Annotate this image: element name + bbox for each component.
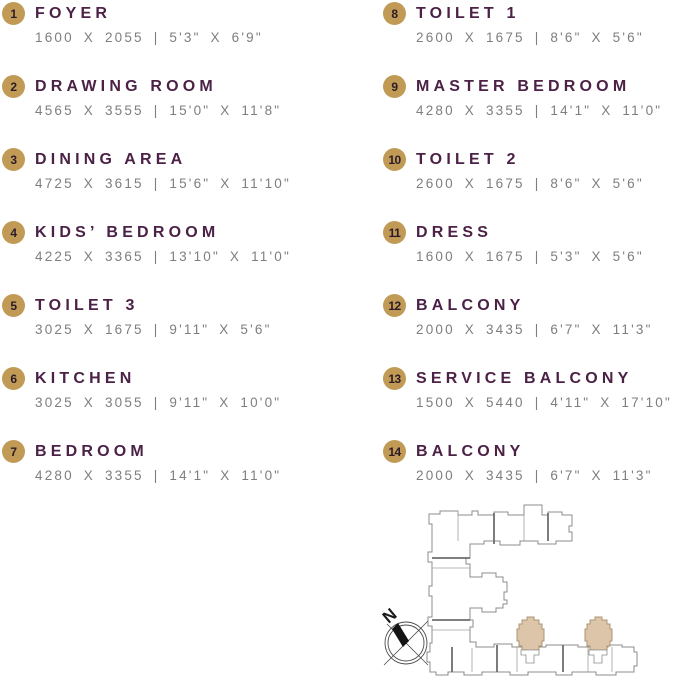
legend-item-header: 7BEDROOM: [2, 440, 291, 463]
room-number-badge: 2: [2, 75, 25, 98]
room-number-badge: 1: [2, 2, 25, 25]
legend-item: 13SERVICE BALCONY1500 X 5440 | 4'11" X 1…: [383, 367, 672, 412]
room-name-label: KITCHEN: [35, 370, 136, 388]
room-number-badge: 12: [383, 294, 406, 317]
legend-item: 14BALCONY2000 X 3435 | 6'7" X 11'3": [383, 440, 672, 485]
room-name-label: TOILET 3: [35, 297, 139, 315]
room-name-label: BALCONY: [416, 297, 525, 315]
room-dimensions-label: 4225 X 3365 | 13'10" X 11'0": [35, 249, 291, 264]
room-number-badge: 13: [383, 367, 406, 390]
room-dimensions-label: 2600 X 1675 | 8'6" X 5'6": [416, 30, 672, 45]
room-dimensions-label: 1600 X 2055 | 5'3" X 6'9": [35, 30, 291, 45]
room-number-badge: 8: [383, 2, 406, 25]
room-name-label: DINING AREA: [35, 151, 186, 169]
legend-item: 6KITCHEN3025 X 3055 | 9'11" X 10'0": [2, 367, 291, 412]
room-name-label: BALCONY: [416, 443, 525, 461]
room-dimensions-label: 2000 X 3435 | 6'7" X 11'3": [416, 468, 672, 483]
legend-item-header: 12BALCONY: [383, 294, 672, 317]
legend-item: 4KIDS’ BEDROOM4225 X 3365 | 13'10" X 11'…: [2, 221, 291, 266]
legend-item: 8TOILET 12600 X 1675 | 8'6" X 5'6": [383, 2, 672, 47]
legend-item-header: 4KIDS’ BEDROOM: [2, 221, 291, 244]
room-name-label: FOYER: [35, 5, 111, 23]
room-number-badge: 11: [383, 221, 406, 244]
legend-item: 11DRESS1600 X 1675 | 5'3" X 5'6": [383, 221, 672, 266]
legend-item: 10TOILET 22600 X 1675 | 8'6" X 5'6": [383, 148, 672, 193]
room-name-label: KIDS’ BEDROOM: [35, 224, 219, 242]
room-dimensions-label: 1600 X 1675 | 5'3" X 5'6": [416, 249, 672, 264]
site-plan: N: [360, 500, 681, 680]
legend-item: 5TOILET 33025 X 1675 | 9'11" X 5'6": [2, 294, 291, 339]
legend-item-header: 2DRAWING ROOM: [2, 75, 291, 98]
room-number-badge: 7: [2, 440, 25, 463]
room-dimensions-label: 4725 X 3615 | 15'6" X 11'10": [35, 176, 291, 191]
room-number-badge: 3: [2, 148, 25, 171]
room-dimensions-label: 2600 X 1675 | 8'6" X 5'6": [416, 176, 672, 191]
legend-column-right: 8TOILET 12600 X 1675 | 8'6" X 5'6"9MASTE…: [383, 2, 672, 485]
legend-item: 2DRAWING ROOM4565 X 3555 | 15'0" X 11'8": [2, 75, 291, 120]
floor-plan-legend-page: 1FOYER1600 X 2055 | 5'3" X 6'9"2DRAWING …: [0, 0, 681, 680]
room-number-badge: 14: [383, 440, 406, 463]
room-dimensions-label: 1500 X 5440 | 4'11" X 17'10": [416, 395, 672, 410]
room-number-badge: 4: [2, 221, 25, 244]
room-name-label: TOILET 2: [416, 151, 520, 169]
room-number-badge: 10: [383, 148, 406, 171]
legend-item-header: 3DINING AREA: [2, 148, 291, 171]
room-number-badge: 9: [383, 75, 406, 98]
room-number-badge: 6: [2, 367, 25, 390]
legend-item-header: 1FOYER: [2, 2, 291, 25]
room-name-label: DRESS: [416, 224, 492, 242]
legend-item-header: 6KITCHEN: [2, 367, 291, 390]
room-name-label: MASTER BEDROOM: [416, 78, 630, 96]
room-name-label: TOILET 1: [416, 5, 520, 23]
legend-item-header: 9MASTER BEDROOM: [383, 75, 672, 98]
legend-column-left: 1FOYER1600 X 2055 | 5'3" X 6'9"2DRAWING …: [2, 2, 291, 485]
legend-item: 3DINING AREA4725 X 3615 | 15'6" X 11'10": [2, 148, 291, 193]
legend-item-header: 10TOILET 2: [383, 148, 672, 171]
room-dimensions-label: 3025 X 1675 | 9'11" X 5'6": [35, 322, 291, 337]
legend-item: 9MASTER BEDROOM4280 X 3355 | 14'1" X 11'…: [383, 75, 672, 120]
legend-item: 7BEDROOM4280 X 3355 | 14'1" X 11'0": [2, 440, 291, 485]
room-dimensions-label: 3025 X 3055 | 9'11" X 10'0": [35, 395, 291, 410]
legend-item: 12BALCONY2000 X 3435 | 6'7" X 11'3": [383, 294, 672, 339]
room-name-label: BEDROOM: [35, 443, 148, 461]
room-dimensions-label: 4280 X 3355 | 14'1" X 11'0": [416, 103, 672, 118]
room-dimensions-label: 2000 X 3435 | 6'7" X 11'3": [416, 322, 672, 337]
room-name-label: DRAWING ROOM: [35, 78, 217, 96]
legend-item-header: 11DRESS: [383, 221, 672, 244]
legend-item-header: 13SERVICE BALCONY: [383, 367, 672, 390]
room-dimensions-label: 4565 X 3555 | 15'0" X 11'8": [35, 103, 291, 118]
legend-item-header: 14BALCONY: [383, 440, 672, 463]
room-name-label: SERVICE BALCONY: [416, 370, 633, 388]
site-plan-svg: N: [360, 500, 681, 680]
compass-icon: N: [379, 605, 428, 665]
legend-item-header: 5TOILET 3: [2, 294, 291, 317]
room-number-badge: 5: [2, 294, 25, 317]
room-dimensions-label: 4280 X 3355 | 14'1" X 11'0": [35, 468, 291, 483]
legend-item: 1FOYER1600 X 2055 | 5'3" X 6'9": [2, 2, 291, 47]
legend-item-header: 8TOILET 1: [383, 2, 672, 25]
compass-needle: [392, 623, 409, 647]
